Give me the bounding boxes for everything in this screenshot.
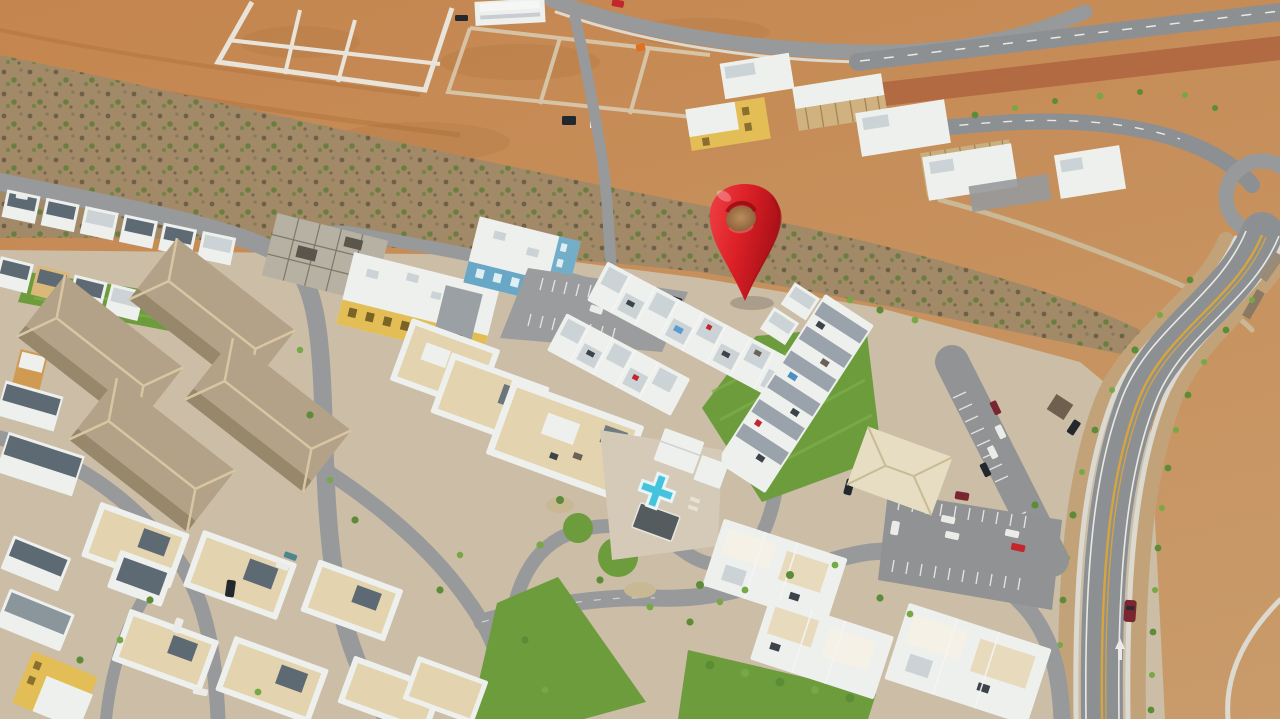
construction-office-building	[474, 0, 545, 26]
aerial-photo-canvas	[0, 0, 1280, 719]
aerial-photo	[0, 0, 1280, 719]
park-lawn-circle	[563, 513, 593, 543]
driving-car	[1123, 600, 1137, 623]
